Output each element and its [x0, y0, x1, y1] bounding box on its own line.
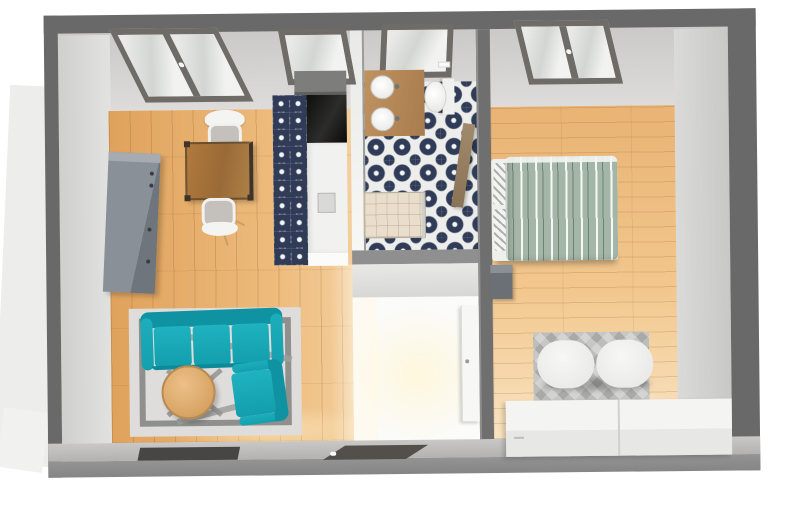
cabinet-handle — [147, 227, 151, 231]
wall-tv[interactable] — [138, 447, 241, 461]
table-leg — [247, 195, 253, 201]
toilet[interactable] — [424, 75, 454, 117]
table-leg — [184, 141, 190, 147]
bedroom-window[interactable] — [514, 20, 623, 85]
door-handle — [465, 359, 469, 363]
toilet-flush-plate — [438, 61, 450, 67]
coffee-table[interactable] — [161, 365, 216, 420]
kitchen-sink[interactable] — [317, 193, 335, 213]
chair-backrest — [202, 222, 238, 236]
dresser-handle — [514, 437, 524, 439]
bathroom-basin-south[interactable] — [371, 107, 395, 131]
storage-cabinet[interactable] — [103, 152, 161, 294]
dresser[interactable] — [506, 399, 733, 457]
bathroom-basin-north[interactable] — [370, 75, 394, 99]
duvet — [505, 156, 618, 261]
sofa-armrest — [140, 318, 154, 370]
toilet-bowl — [424, 81, 446, 113]
armchair[interactable] — [228, 358, 290, 427]
bedroom-door[interactable] — [461, 305, 480, 421]
shower-glass-edge — [421, 193, 424, 239]
cabinet-top — [108, 152, 160, 163]
east-outer-wall — [728, 8, 761, 470]
table-leg — [184, 195, 190, 201]
window-handle — [565, 50, 571, 55]
bathroom-vanity[interactable] — [364, 70, 425, 137]
bathroom-south-wall — [352, 249, 492, 264]
faucet-icon — [394, 84, 399, 89]
kitchen-counter-face — [308, 253, 348, 266]
bench[interactable] — [537, 339, 653, 388]
shower-tray[interactable] — [363, 192, 425, 239]
cabinet-handle — [150, 172, 154, 176]
bench-half — [596, 339, 653, 388]
kitchen-floor-tiles — [272, 95, 308, 265]
window-handle — [177, 62, 184, 67]
armchair-cushion — [231, 369, 276, 418]
sofa-cushion — [154, 326, 192, 367]
bench-half — [537, 340, 594, 389]
sofa-cushion — [192, 324, 230, 365]
bed[interactable] — [491, 156, 618, 263]
entry-door-handle — [330, 452, 336, 456]
sofa-cushion — [231, 323, 269, 364]
cabinet-handle — [146, 259, 150, 263]
dining-chair-south[interactable] — [200, 198, 240, 240]
east-wall-face — [674, 29, 732, 438]
bathroom-south-wall-face — [352, 263, 492, 297]
kitchen-wall-cabinet[interactable] — [294, 71, 346, 96]
cabinet-handle — [149, 184, 153, 188]
nightstand[interactable] — [490, 265, 512, 299]
duvet-fold — [505, 156, 617, 163]
ground-shadow-corner — [0, 407, 50, 473]
kitchen-oven[interactable] — [306, 95, 347, 143]
apartment-plan — [44, 8, 761, 477]
floor-plan-canvas — [0, 0, 800, 506]
dining-table[interactable] — [185, 142, 254, 201]
nightstand-top — [490, 265, 512, 273]
faucet-icon — [395, 116, 400, 121]
